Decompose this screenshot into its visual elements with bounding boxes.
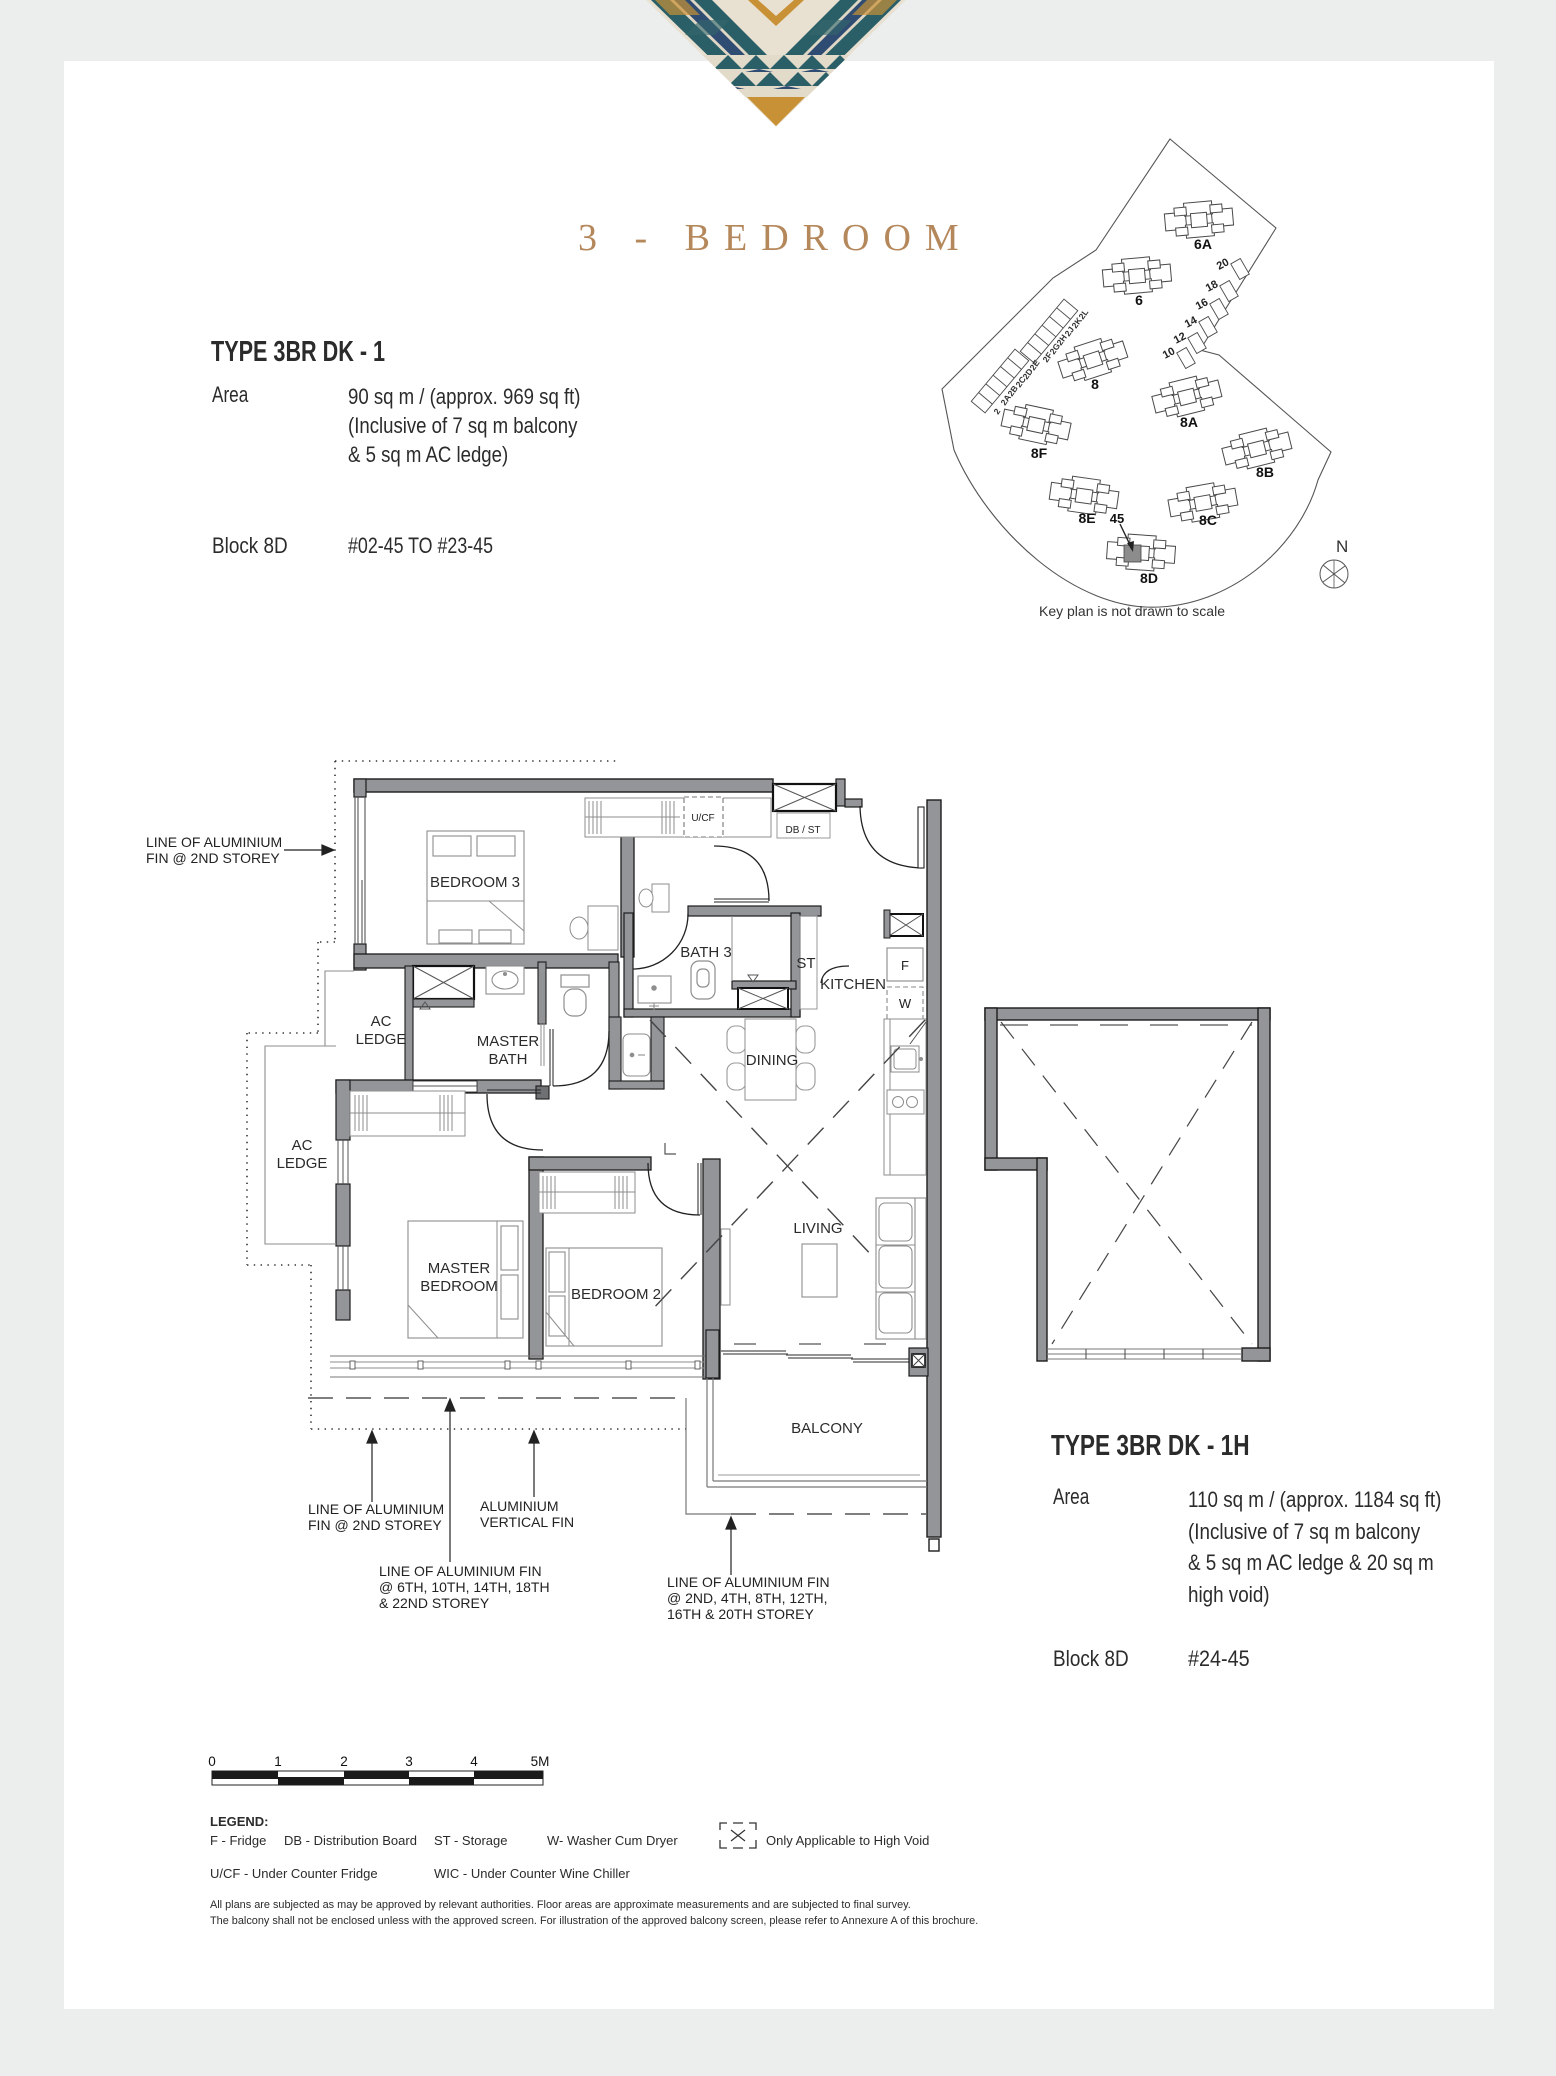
svg-text:BATH 3: BATH 3 [680, 944, 731, 961]
svg-text:16TH & 20TH STOREY: 16TH & 20TH STOREY [667, 1606, 814, 1622]
svg-text:45: 45 [1110, 511, 1124, 526]
svg-text:20: 20 [1215, 256, 1231, 272]
svg-text:FIN @ 2ND STOREY: FIN @ 2ND STOREY [308, 1517, 442, 1533]
svg-text:VERTICAL FIN: VERTICAL FIN [480, 1514, 574, 1530]
svg-text:4: 4 [470, 1754, 478, 1769]
svg-text:3: 3 [405, 1754, 413, 1769]
svg-text:BEDROOM: BEDROOM [420, 1278, 498, 1295]
svg-text:BATH: BATH [489, 1051, 528, 1068]
svg-text:10: 10 [1161, 345, 1177, 361]
svg-text:8A: 8A [1180, 414, 1198, 430]
svg-text:LINE OF ALUMINIUM: LINE OF ALUMINIUM [308, 1501, 444, 1517]
svg-text:16: 16 [1194, 296, 1210, 312]
svg-text:DINING: DINING [746, 1052, 799, 1069]
svg-text:U/CF: U/CF [691, 813, 714, 824]
svg-text:FIN @ 2ND STOREY: FIN @ 2ND STOREY [146, 850, 280, 866]
svg-text:18: 18 [1204, 278, 1220, 294]
svg-text:F: F [901, 958, 909, 973]
svg-text:2: 2 [340, 1754, 348, 1769]
svg-text:BALCONY: BALCONY [791, 1420, 863, 1437]
svg-text:2: 2 [991, 406, 1002, 416]
svg-text:8: 8 [1091, 376, 1099, 392]
svg-text:8C: 8C [1199, 512, 1217, 528]
svg-text:LINE OF ALUMINIUM: LINE OF ALUMINIUM [146, 834, 282, 850]
svg-text:5M: 5M [531, 1754, 550, 1769]
svg-text:MASTER: MASTER [477, 1033, 540, 1050]
svg-text:LEDGE: LEDGE [356, 1031, 407, 1048]
svg-text:LINE OF ALUMINIUM FIN: LINE OF ALUMINIUM FIN [379, 1563, 542, 1579]
svg-text:BEDROOM 3: BEDROOM 3 [430, 874, 520, 891]
svg-text:8E: 8E [1078, 510, 1095, 526]
svg-text:BEDROOM 2: BEDROOM 2 [571, 1286, 661, 1303]
svg-text:AC: AC [292, 1137, 313, 1154]
svg-text:12: 12 [1172, 330, 1188, 346]
svg-text:14: 14 [1183, 314, 1200, 331]
svg-text:LEDGE: LEDGE [277, 1155, 328, 1172]
svg-text:0: 0 [208, 1754, 216, 1769]
svg-text:& 22ND STOREY: & 22ND STOREY [379, 1595, 490, 1611]
svg-text:8F: 8F [1031, 445, 1048, 461]
svg-text:N: N [1336, 537, 1348, 556]
svg-text:MASTER: MASTER [428, 1260, 491, 1277]
svg-text:DB / ST: DB / ST [785, 825, 820, 836]
svg-text:ST: ST [796, 955, 815, 972]
svg-text:@ 2ND, 4TH, 8TH, 12TH,: @ 2ND, 4TH, 8TH, 12TH, [667, 1590, 827, 1606]
svg-text:LIVING: LIVING [793, 1220, 842, 1237]
svg-text:W: W [899, 996, 912, 1011]
svg-text:6A: 6A [1194, 236, 1212, 252]
svg-text:8B: 8B [1256, 464, 1274, 480]
svg-text:Key plan is not drawn to scale: Key plan is not drawn to scale [1039, 603, 1225, 619]
svg-text:@ 6TH, 10TH, 14TH, 18TH: @ 6TH, 10TH, 14TH, 18TH [379, 1579, 550, 1595]
svg-text:6: 6 [1135, 292, 1143, 308]
svg-text:ALUMINIUM: ALUMINIUM [480, 1498, 559, 1514]
svg-text:LINE OF ALUMINIUM FIN: LINE OF ALUMINIUM FIN [667, 1574, 830, 1590]
svg-text:1: 1 [274, 1754, 282, 1769]
svg-text:KITCHEN: KITCHEN [820, 976, 886, 993]
svg-text:AC: AC [371, 1013, 392, 1030]
svg-text:8D: 8D [1140, 570, 1158, 586]
